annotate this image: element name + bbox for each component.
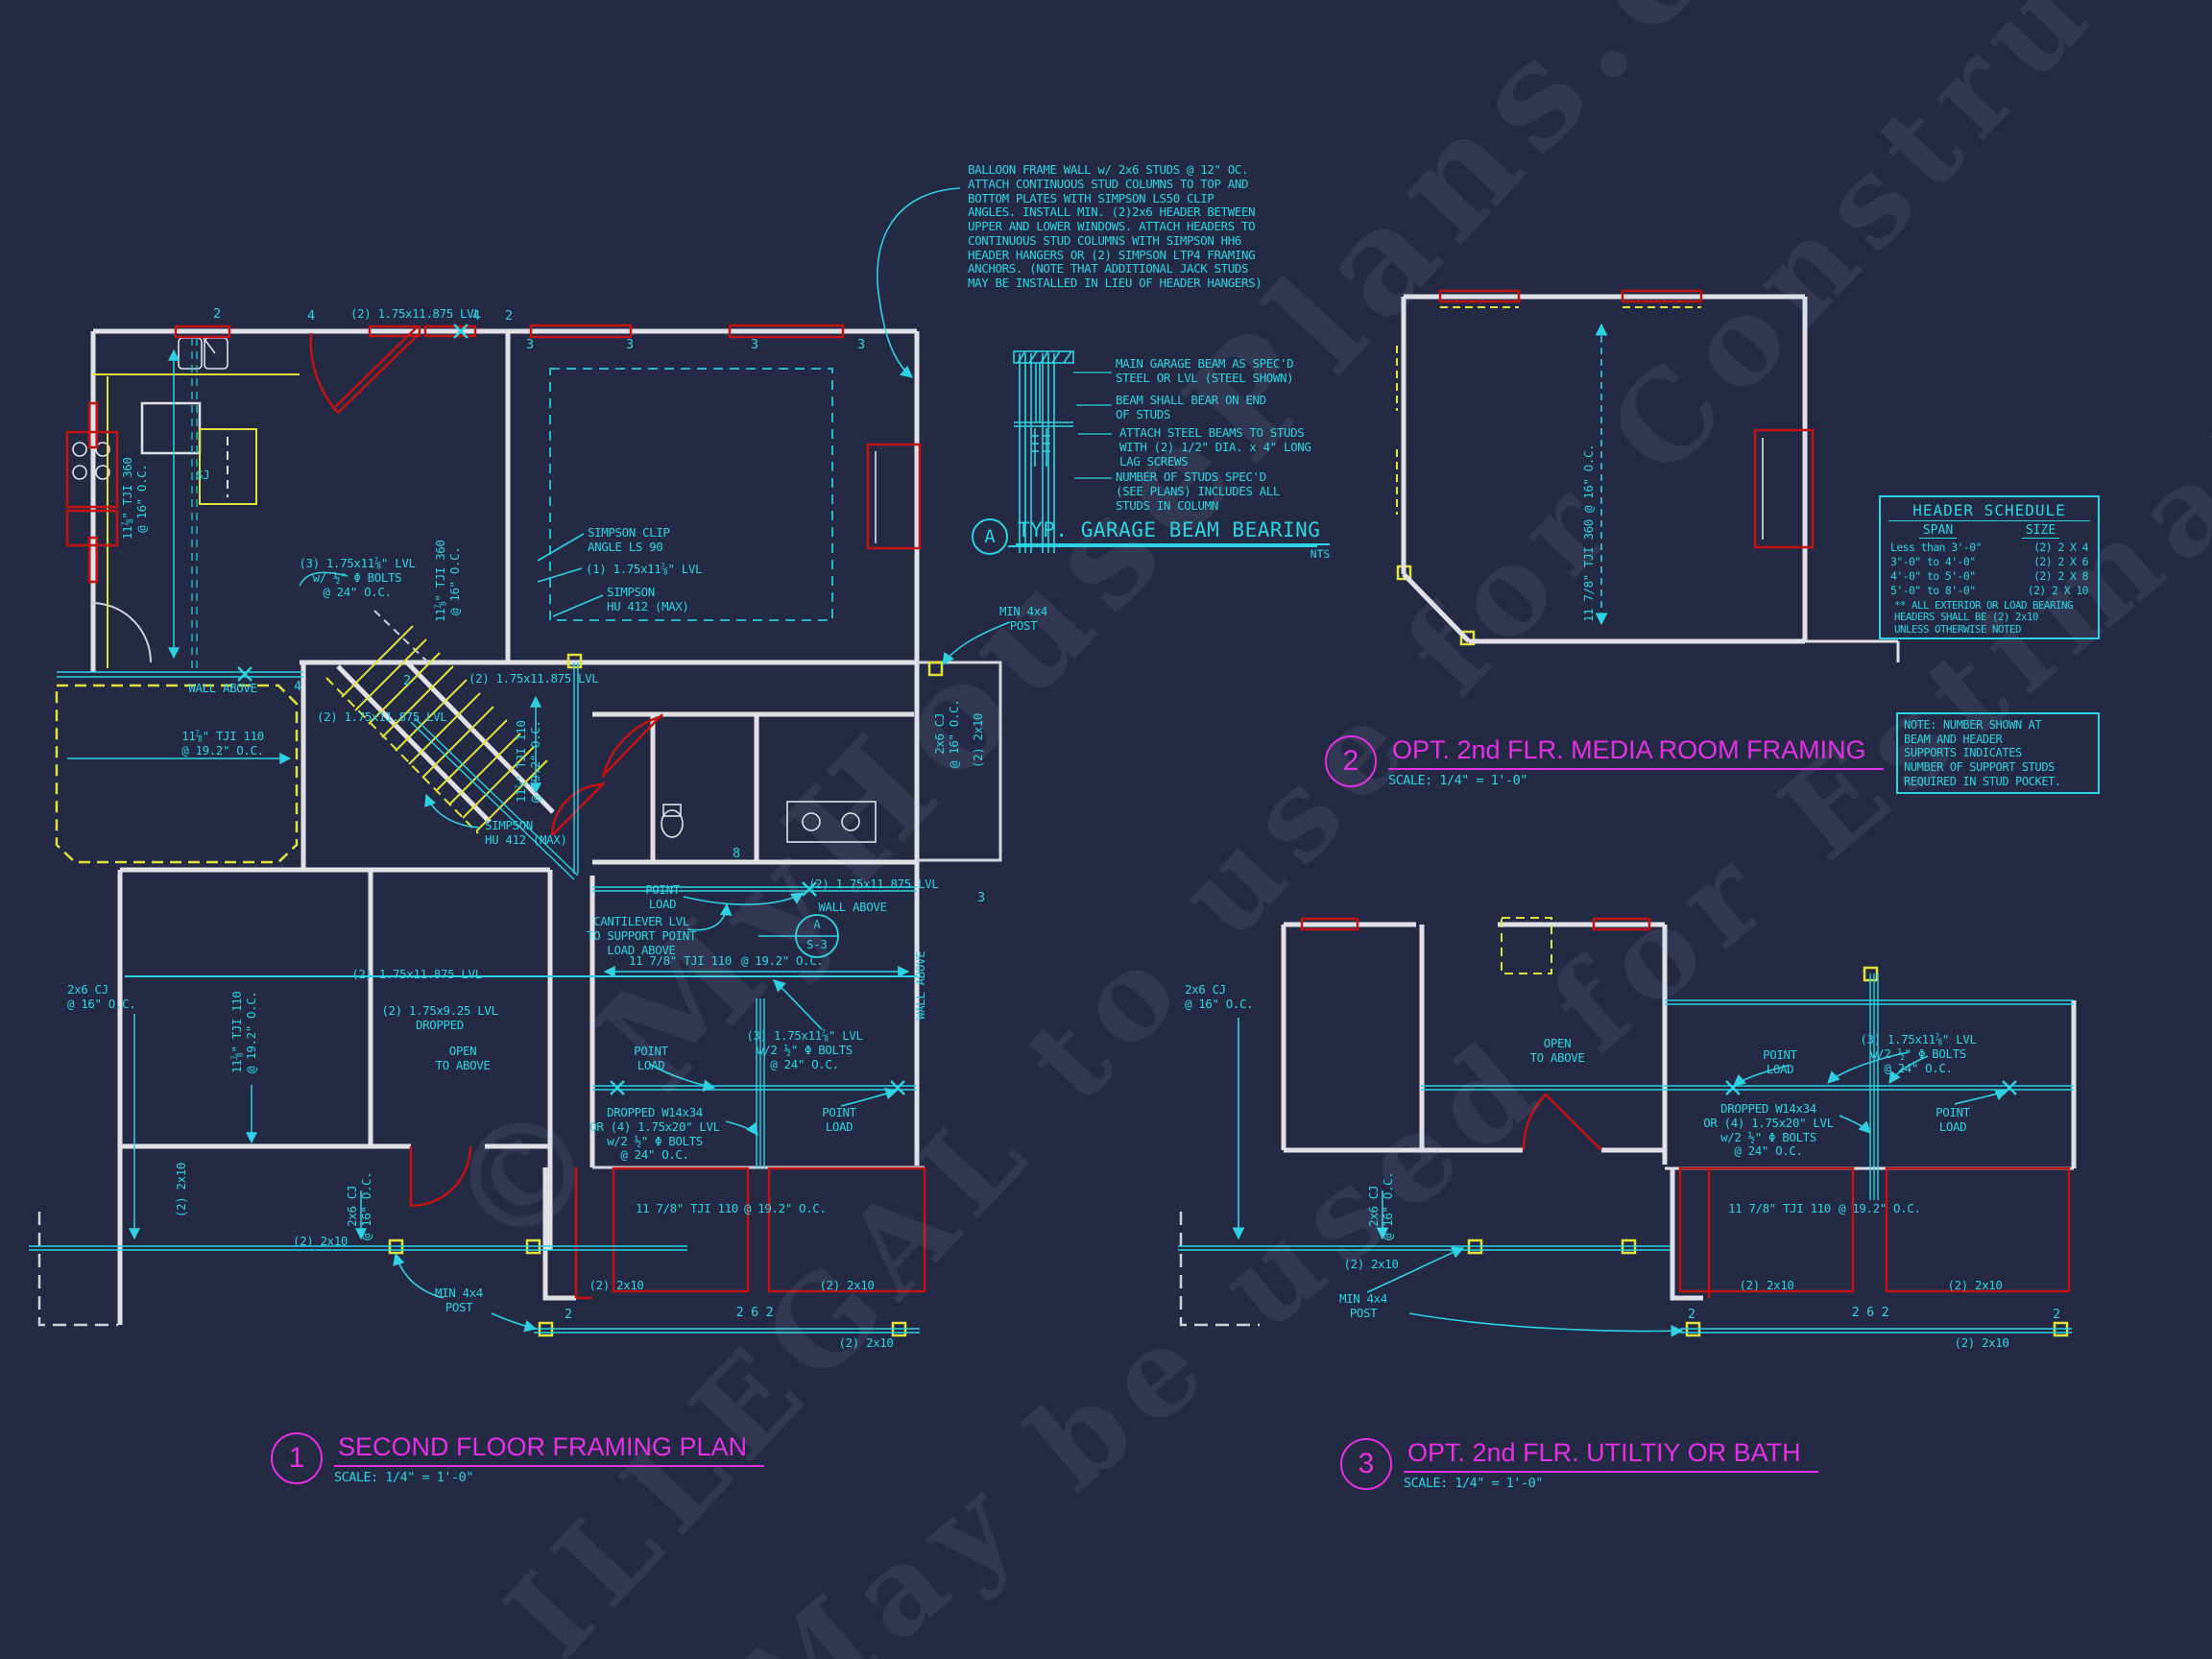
label-tji110-leftroom: 11⅞" TJI 110 @ 19.2" O.C. [230, 991, 259, 1073]
label-lvl3-w2: (3) 1.75x11⅞" LVL w/2 ½" Φ BOLTS @ 24" O… [746, 1029, 862, 1071]
stud-count: 2 [1688, 1308, 1695, 1323]
span-cell: 3"-0" to 4'-0" [1890, 555, 1976, 568]
label-lvl3-w2-p3: (3) 1.75x11⅞" LVL w/2 ½" Φ BOLTS @ 24" O… [1860, 1033, 1976, 1075]
header-schedule-note: ** ALL EXTERIOR OR LOAD BEARING HEADERS … [1894, 600, 2090, 636]
label-2x10-p3-d: (2) 2x10 [1954, 1336, 2008, 1351]
label-tji360-kitchen: 11⅞" TJI 360 @ 16" O.C. [121, 457, 150, 540]
header-schedule-col-size: SIZE [2022, 523, 2059, 539]
detail-a-bubble: A [972, 518, 1008, 555]
table-row: 3"-0" to 4'-0"(2) 2 X 6 [1890, 555, 2088, 568]
stud-note-box: NOTE: NUMBER SHOWN AT BEAM AND HEADER SU… [1896, 712, 2100, 794]
label-point-load-2: POINT LOAD [634, 1045, 668, 1073]
label-lvl-right: (2) 1.75x11.875 LVL [808, 878, 938, 892]
header-schedule: HEADER SCHEDULE SPAN SIZE Less than 3'-0… [1879, 495, 2100, 639]
label-tji110-garage-a: 11 7/8" TJI 110 [636, 1202, 738, 1216]
table-row: 4'-0" to 5'-0"(2) 2 X 8 [1890, 569, 2088, 583]
stud-count: 3 [977, 891, 985, 906]
label-cj26-p3-vert: 2x6 CJ @ 16" O.C. [1367, 1172, 1396, 1240]
label-min44-post: MIN 4x4 POST [435, 1286, 483, 1315]
label-wall-above-vert: WALL ABOVE [914, 951, 928, 1020]
size-cell: (2) 2 X 6 [2033, 555, 2088, 568]
table-row: 5'-0" to 8'-0"(2) 2 X 10 [1890, 584, 2088, 597]
stud-count-cluster: 2 6 2 [1852, 1306, 1889, 1321]
table-row: Less than 3'-0"(2) 2 X 4 [1890, 541, 2088, 554]
label-point-load-1: POINT LOAD [645, 883, 680, 912]
stud-count: 3 [626, 338, 634, 353]
plan3-title-bubble: 3 [1340, 1438, 1392, 1490]
balloon-frame-note: BALLOON FRAME WALL w/ 2x6 STUDS @ 12" OC… [968, 163, 1299, 291]
label-min44-right: MIN 4x4 POST [999, 605, 1047, 634]
stud-count: 3 [751, 338, 758, 353]
label-sj: SJ [196, 469, 209, 483]
plan1-title-block: 1 SECOND FLOOR FRAMING PLAN SCALE: 1/4" … [271, 1432, 764, 1485]
label-lvl-midleft: (2) 1.75x11.875 LVL [317, 710, 446, 725]
stud-count: 2 [565, 1308, 572, 1323]
stud-count: 4 [307, 309, 315, 325]
span-cell: 4'-0" to 5'-0" [1890, 569, 1976, 583]
section-bubble-a: A [813, 918, 820, 931]
label-tji110-p3-a: 11 7/8" TJI 110 [1728, 1202, 1831, 1216]
span-cell: Less than 3'-0" [1890, 541, 1982, 554]
stud-count: 2 [213, 307, 221, 323]
detail-label-bear: BEAM SHALL BEAR ON END OF STUDS [1116, 394, 1266, 422]
label-open-above: OPEN TO ABOVE [435, 1045, 490, 1073]
label-min44-p3: MIN 4x4 POST [1339, 1292, 1387, 1321]
stud-count: 2 [505, 309, 513, 325]
label-2x10-p3-c: (2) 2x10 [1947, 1279, 2002, 1293]
plan2-scale: SCALE: 1/4" = 1'-0" [1388, 773, 1884, 788]
label-simpson-hu-2: SIMPSON HU 412 (MAX) [485, 819, 567, 848]
label-2x10-d: (2) 2x10 [838, 1336, 893, 1351]
label-dropped-p3: DROPPED W14x34 OR (4) 1.75x20" LVL w/2 ½… [1703, 1102, 1833, 1159]
detail-a-title-text: TYP. GARAGE BEAM BEARING [1016, 518, 1330, 545]
label-cj26-left: 2x6 CJ @ 16" O.C. [67, 983, 135, 1012]
plan2-title: OPT. 2nd FLR. MEDIA ROOM FRAMING [1388, 735, 1884, 770]
section-bubble-s3: S-3 [806, 938, 828, 951]
label-tji110-dim-b: @ 19.2" O.C. [741, 954, 824, 969]
plan3-scale: SCALE: 1/4" = 1'-0" [1404, 1476, 1818, 1491]
label-wall-above-deck: WALL ABOVE [188, 682, 256, 696]
label-2x10-p3-b: (2) 2x10 [1739, 1279, 1793, 1293]
label-simpson-hu: SIMPSON HU 412 (MAX) [607, 586, 689, 614]
blueprint-sheet: © MyHousePlans.com ILLEGAL to use for Co… [0, 0, 2212, 1659]
label-cj26-vert: 2x6 CJ @ 16" O.C. [346, 1172, 374, 1240]
detail-a-nts: NTS [1016, 547, 1330, 561]
size-cell: (2) 2 X 4 [2033, 541, 2088, 554]
span-cell: 5'-0" to 8'-0" [1890, 584, 1976, 597]
stud-count: 3 [857, 338, 865, 353]
label-point-load-p3-1: POINT LOAD [1763, 1048, 1797, 1077]
size-cell: (2) 2 X 10 [2028, 584, 2088, 597]
label-lvl925: (2) 1.75x9.25 LVL DROPPED [381, 1004, 497, 1033]
label-2x10-vert: (2) 2x10 [175, 1163, 189, 1217]
label-tji360-garage: 11⅞" TJI 360 @ 16" O.C. [434, 540, 463, 622]
plan3-title: OPT. 2nd FLR. UTILTIY OR BATH [1404, 1438, 1818, 1473]
plan1-cyan-dashed [192, 338, 832, 670]
stud-count-cluster: 2 6 2 [736, 1306, 774, 1321]
label-tji110-garage-b: @ 19.2" O.C. [744, 1202, 827, 1216]
label-tji110-p3-b: @ 19.2" O.C. [1839, 1202, 1921, 1216]
stud-count: 3 [526, 338, 534, 353]
plan2-title-bubble: 2 [1325, 735, 1377, 787]
label-simpson-clip: SIMPSON CLIP ANGLE LS 90 [588, 526, 670, 555]
stud-count: 4 [472, 309, 480, 325]
header-schedule-col-span: SPAN [1919, 523, 1957, 539]
size-cell: (2) 2 X 8 [2033, 569, 2088, 583]
label-2x10-p3-a: (2) 2x10 [1343, 1258, 1398, 1272]
detail-a-title: A TYP. GARAGE BEAM BEARING NTS [972, 518, 1330, 561]
label-lvl1: (1) 1.75x11⅞" LVL [586, 563, 702, 577]
plan1-title-bubble: 1 [271, 1432, 323, 1484]
label-cantilever: CANTILEVER LVL TO SUPPORT POINT LOAD ABO… [587, 915, 696, 957]
label-lvl3-bolts: (3) 1.75x11⅞" LVL w/ ½" Φ BOLTS @ 24" O.… [299, 557, 415, 599]
stud-count: 4 [294, 680, 301, 695]
label-2x10-a: (2) 2x10 [293, 1235, 348, 1249]
plan1-scale: SCALE: 1/4" = 1'-0" [334, 1470, 764, 1485]
header-schedule-title: HEADER SCHEDULE [1888, 501, 2090, 521]
label-tji110-deck: 11⅞" TJI 110 @ 19.2" O.C. [181, 730, 264, 758]
label-lvl-lower: (2) 1.75x11.875 LVL [351, 968, 481, 982]
label-dropped: DROPPED W14x34 OR (4) 1.75x20" LVL w/2 ½… [589, 1106, 719, 1163]
label-open-above-p3: OPEN TO ABOVE [1529, 1037, 1584, 1066]
label-point-load-3: POINT LOAD [822, 1106, 856, 1135]
stud-count: 2 [2053, 1308, 2060, 1323]
label-cj26-ext: 2x6 CJ @ 16" O.C. [933, 700, 962, 768]
detail-label-attach: ATTACH STEEL BEAMS TO STUDS WITH (2) 1/2… [1119, 426, 1311, 469]
label-2x10-b: (2) 2x10 [589, 1279, 643, 1293]
stud-count: 8 [733, 847, 740, 862]
label-tji360-media: 11 7/8" TJI 360 @ 16" O.C. [1582, 445, 1597, 622]
stud-count: 2 [403, 674, 411, 689]
label-2x10-ext: (2) 2x10 [972, 713, 986, 768]
label-lvl-center: (2) 1.75x11.875 LVL [469, 672, 598, 686]
plan1-title: SECOND FLOOR FRAMING PLAN [334, 1432, 764, 1467]
detail-label-studs: NUMBER OF STUDS SPEC'D (SEE PLANS) INCLU… [1116, 470, 1280, 513]
label-tji110-stairs: 11⅞" TJI 110 @ 19.2" O.C. [515, 720, 543, 803]
label-2x10-c: (2) 2x10 [819, 1279, 874, 1293]
label-wall-above-mid: WALL ABOVE [818, 901, 886, 915]
label-cj26-p3: 2x6 CJ @ 16" O.C. [1185, 983, 1253, 1012]
label-tji110-dim-a: 11 7/8" TJI 110 [629, 954, 732, 969]
plan3-title-block: 3 OPT. 2nd FLR. UTILTIY OR BATH SCALE: 1… [1340, 1438, 1818, 1491]
label-point-load-p3-2: POINT LOAD [1935, 1106, 1970, 1135]
detail-label-beam: MAIN GARAGE BEAM AS SPEC'D STEEL OR LVL … [1116, 357, 1293, 386]
plan2-title-block: 2 OPT. 2nd FLR. MEDIA ROOM FRAMING SCALE… [1325, 735, 1884, 788]
label-lvl-top: (2) 1.75x11.875 LVL [350, 307, 480, 322]
